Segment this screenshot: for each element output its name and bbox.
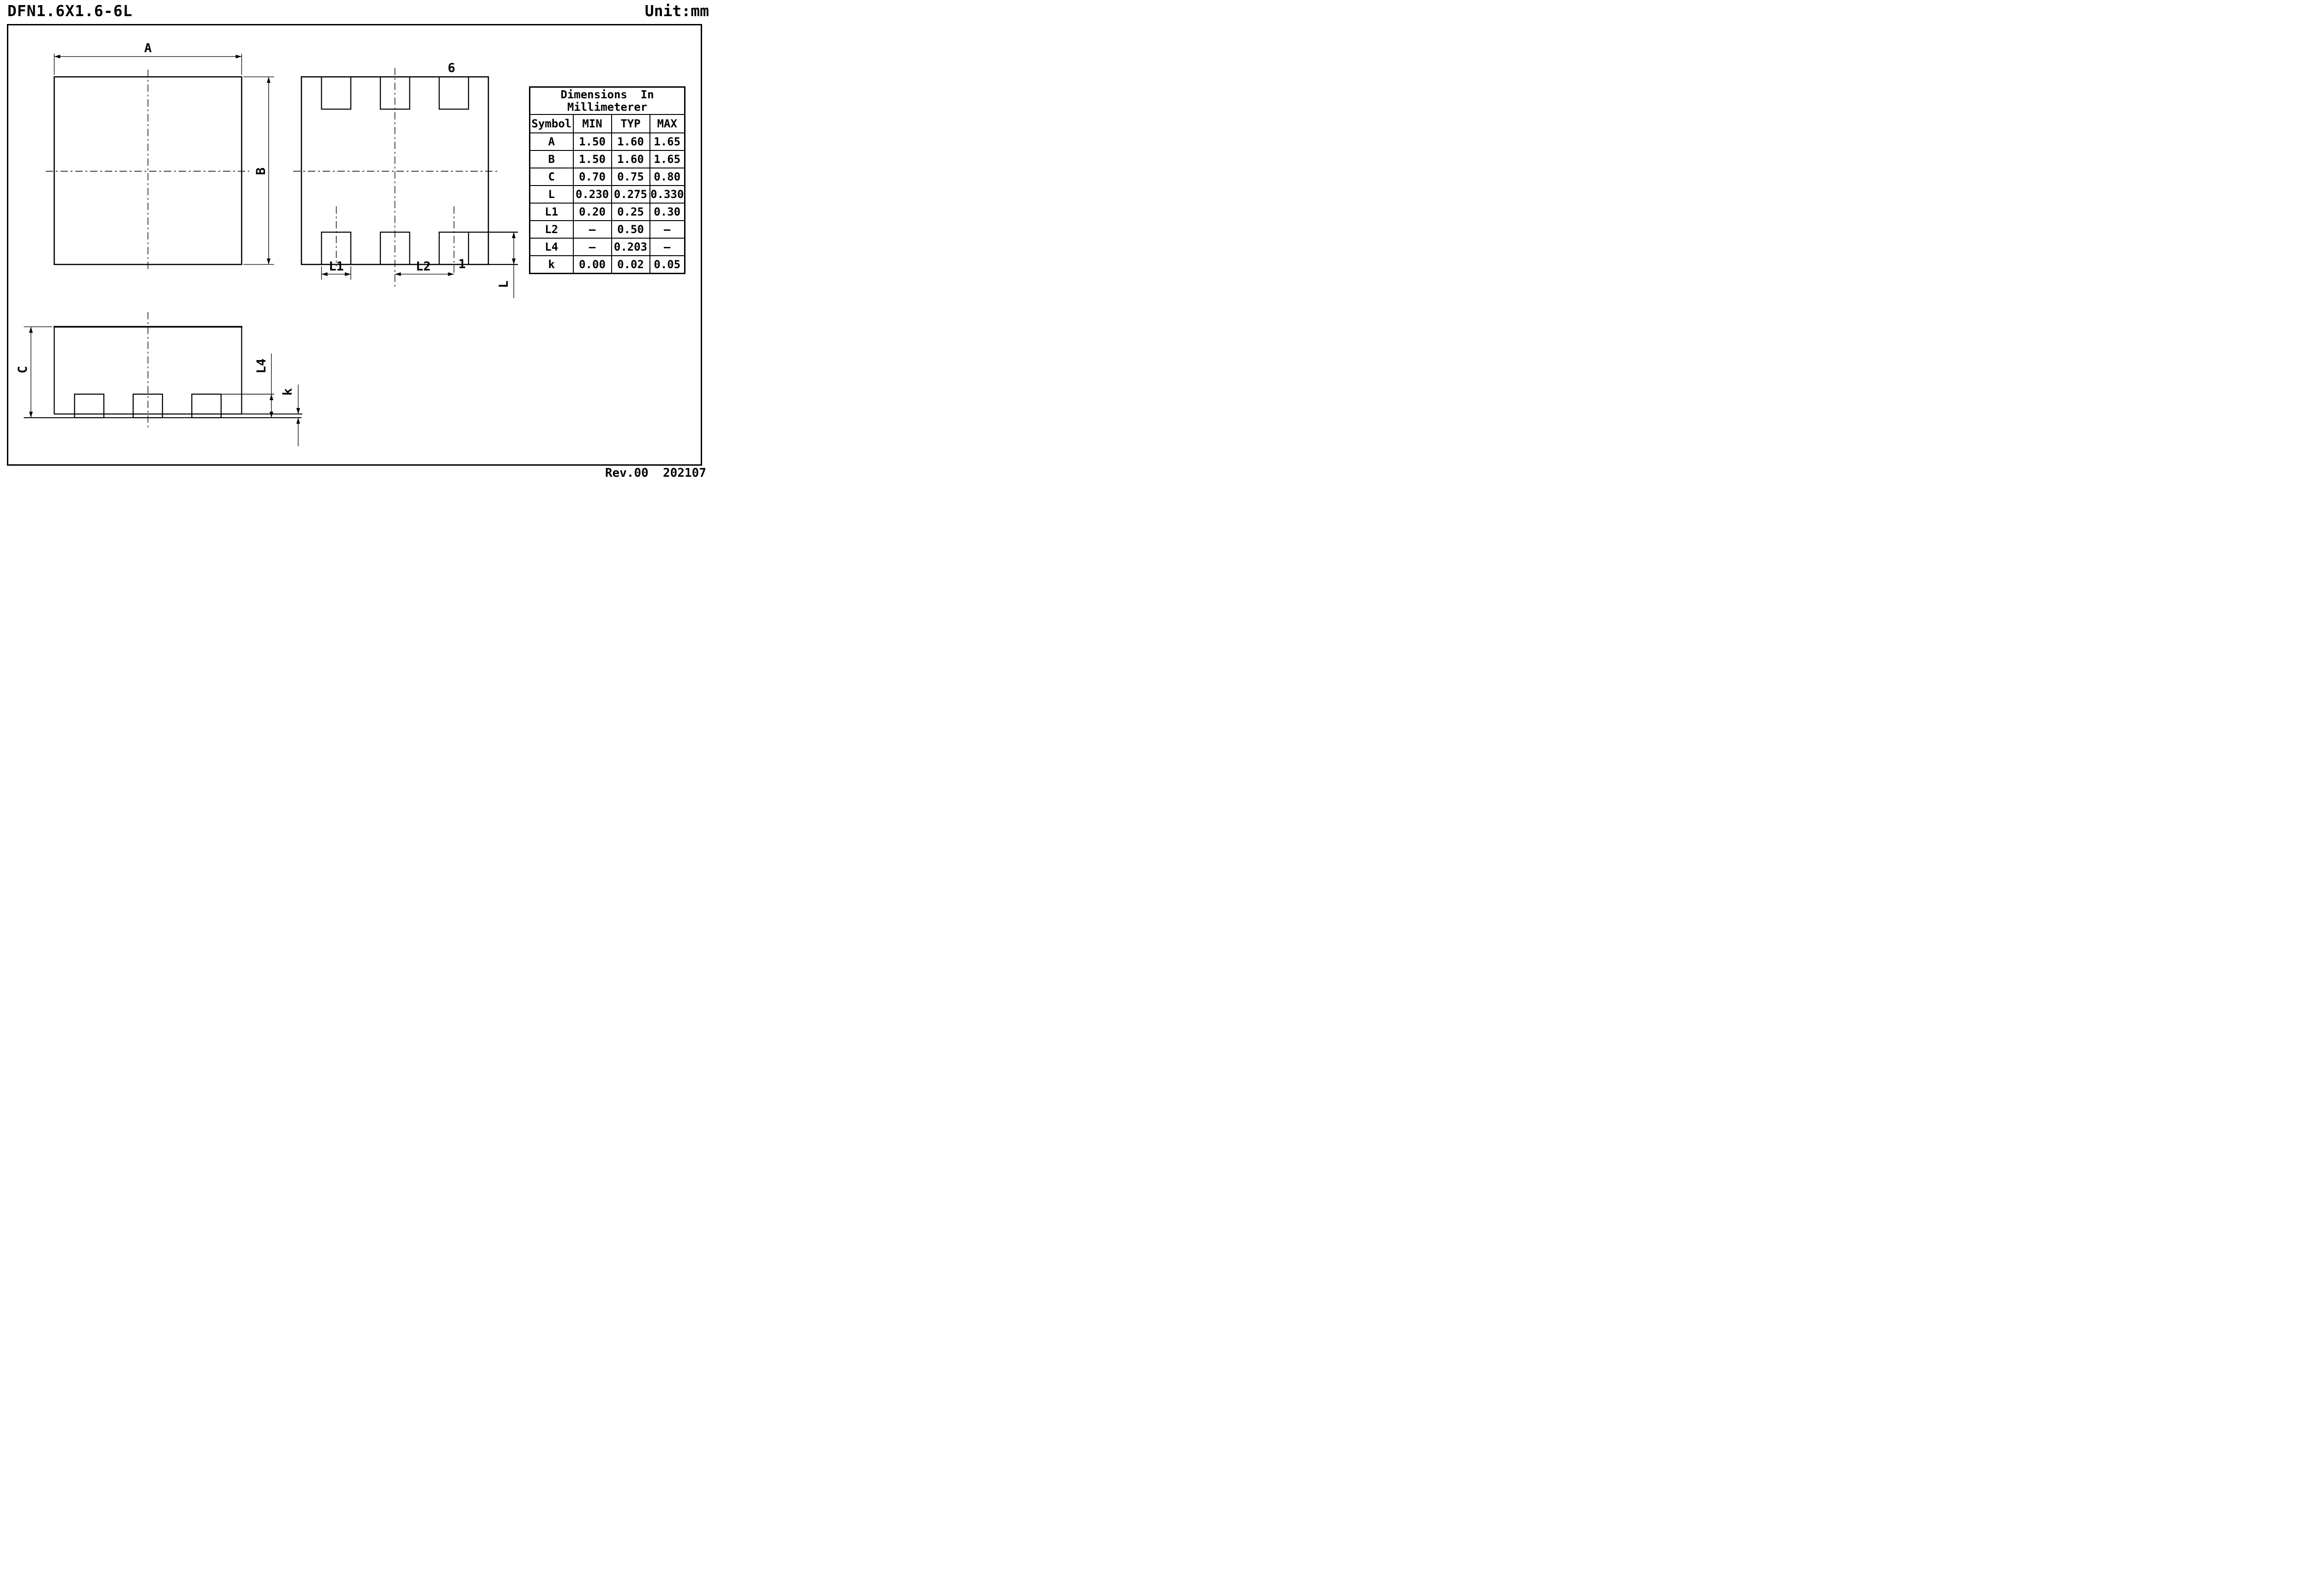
cell-symbol: C <box>530 168 573 186</box>
cell-min: 0.20 <box>573 203 612 221</box>
cell-min: 0.70 <box>573 168 612 186</box>
dim-L1: L1 <box>322 259 351 280</box>
table-title-line2: Millimeterer <box>567 101 647 114</box>
top-view: A B <box>46 41 274 270</box>
table-row: k0.000.020.05 <box>530 256 685 274</box>
cell-symbol: L2 <box>530 221 573 238</box>
cell-typ: 1.60 <box>612 133 650 150</box>
top-view-centerlines <box>46 70 249 270</box>
cell-symbol: L4 <box>530 238 573 256</box>
revision-label: Rev.00 202107 <box>605 466 706 479</box>
dim-label-L2: L2 <box>416 259 431 274</box>
table-row: C0.700.750.80 <box>530 168 685 186</box>
cell-max: 1.65 <box>650 150 685 168</box>
dim-label-C: C <box>16 366 30 373</box>
dim-label-A: A <box>144 41 151 55</box>
cell-typ: 0.75 <box>612 168 650 186</box>
cell-typ: 0.275 <box>612 186 650 203</box>
pin-1-label: 1 <box>458 257 466 271</box>
dim-L: L <box>469 232 518 298</box>
col-header-max: MAX <box>650 114 685 133</box>
cell-typ: 0.50 <box>612 221 650 238</box>
cell-typ: 0.02 <box>612 256 650 274</box>
table-header-row: Symbol MIN TYP MAX <box>530 114 685 133</box>
cell-max: 0.30 <box>650 203 685 221</box>
dim-k: k <box>281 384 300 446</box>
cell-min: 0.230 <box>573 186 612 203</box>
cell-max: 1.65 <box>650 133 685 150</box>
dimension-table: Dimensions InMillimeterer Symbol MIN TYP… <box>529 86 685 274</box>
cell-max: – <box>650 238 685 256</box>
cell-symbol: L <box>530 186 573 203</box>
cell-symbol: A <box>530 133 573 150</box>
col-header-min: MIN <box>573 114 612 133</box>
dim-label-L4: L4 <box>254 359 269 374</box>
cell-max: 0.80 <box>650 168 685 186</box>
table-row: L2–0.50– <box>530 221 685 238</box>
bottom-view-centerlines <box>293 68 498 289</box>
cell-max: 0.05 <box>650 256 685 274</box>
table-row: B1.501.601.65 <box>530 150 685 168</box>
dim-L2: L2 <box>395 259 454 276</box>
table-row: L0.2300.2750.330 <box>530 186 685 203</box>
cell-typ: 0.203 <box>612 238 650 256</box>
cell-min: – <box>573 221 612 238</box>
cell-min: 1.50 <box>573 150 612 168</box>
side-view: C L4 k <box>16 312 302 446</box>
cell-symbol: L1 <box>530 203 573 221</box>
cell-max: – <box>650 221 685 238</box>
cell-max: 0.330 <box>650 186 685 203</box>
cell-min: 0.00 <box>573 256 612 274</box>
table-row: L4–0.203– <box>530 238 685 256</box>
table-title-row: Dimensions InMillimeterer <box>530 87 685 115</box>
dim-label-B: B <box>254 168 268 175</box>
table-row: A1.501.601.65 <box>530 133 685 150</box>
dim-C: C <box>16 327 52 418</box>
cell-min: 1.50 <box>573 133 612 150</box>
dim-label-L1: L1 <box>329 259 344 274</box>
col-header-symbol: Symbol <box>530 114 573 133</box>
pin-6-label: 6 <box>448 61 455 75</box>
dim-label-k: k <box>281 388 295 396</box>
dim-B: B <box>243 77 274 265</box>
table-title-cell: Dimensions InMillimeterer <box>530 87 685 115</box>
table-row: L10.200.250.30 <box>530 203 685 221</box>
cell-min: – <box>573 238 612 256</box>
table-title-line1: Dimensions In <box>560 88 654 101</box>
dim-label-L: L <box>497 281 511 288</box>
cell-symbol: B <box>530 150 573 168</box>
cell-symbol: k <box>530 256 573 274</box>
cell-typ: 1.60 <box>612 150 650 168</box>
bottom-view: 6 1 L1 L2 <box>293 61 518 298</box>
drawing-sheet: DFN1.6X1.6-6L Unit:mm A <box>0 0 711 479</box>
dim-L4: L4 <box>220 354 274 418</box>
col-header-typ: TYP <box>612 114 650 133</box>
cell-typ: 0.25 <box>612 203 650 221</box>
